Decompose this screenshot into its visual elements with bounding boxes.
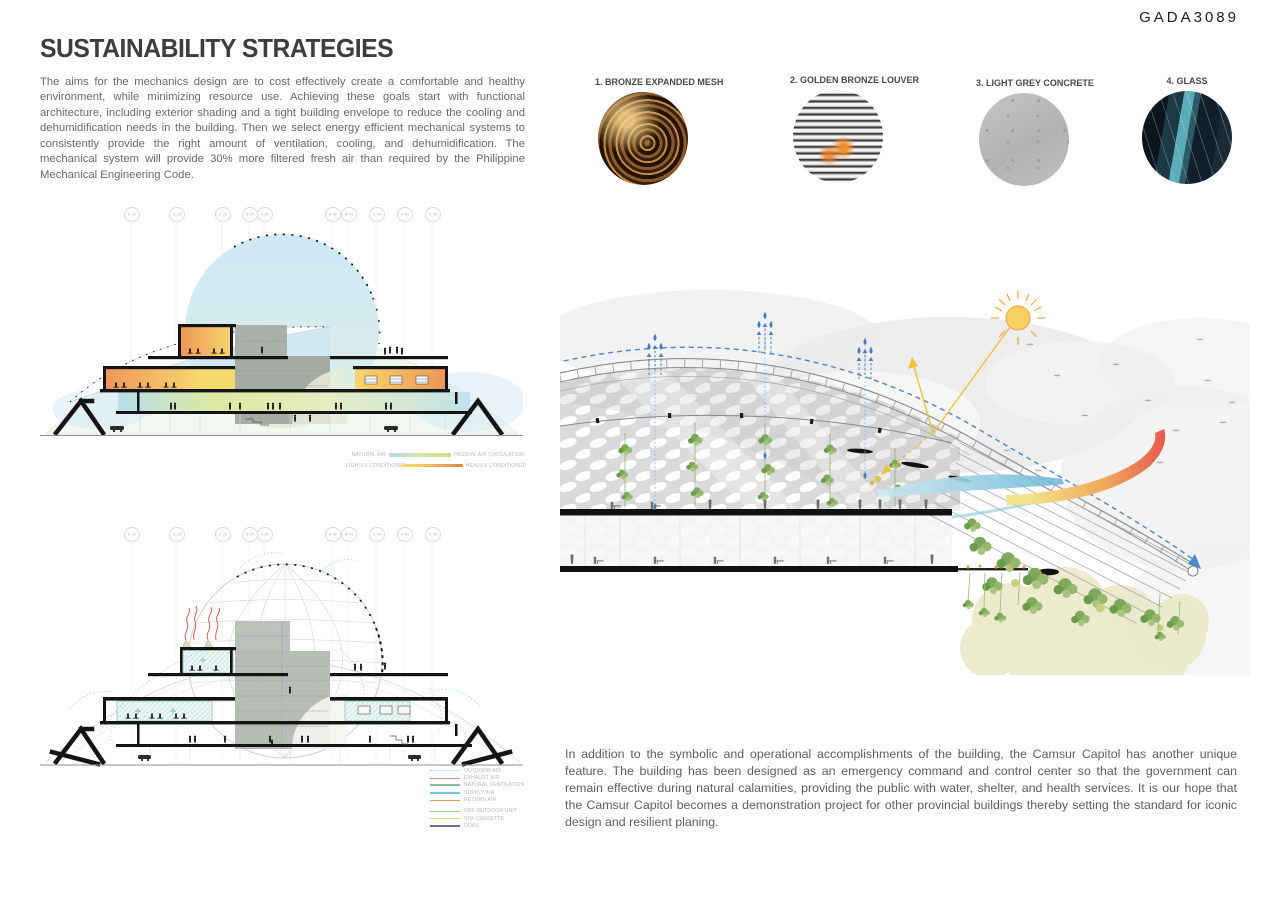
presentation-board: SUSTAINABILITY STRATEGIES GADA3089 The a… bbox=[0, 0, 1273, 900]
thermal-legend: NATURAL AIR PASSIVE AIR CIRCULATION LIGH… bbox=[346, 452, 524, 473]
exhaust-stacks bbox=[181, 606, 219, 650]
legend-line bbox=[430, 825, 460, 827]
concrete-photo bbox=[979, 93, 1069, 186]
environmental-section-perspective bbox=[560, 283, 1250, 675]
gradient-bar bbox=[389, 453, 451, 457]
gradient-bar bbox=[401, 464, 463, 468]
legend-row: SUPPLY AIR bbox=[430, 789, 540, 796]
legend-row: VRF CASSETTE bbox=[430, 815, 540, 822]
material-item: 2. GOLDEN BRONZE LOUVER bbox=[790, 75, 886, 183]
mechanical-section-diagram bbox=[40, 526, 523, 772]
bronze-mesh-photo bbox=[598, 92, 688, 185]
material-item: 3. LIGHT GREY CONCRETE bbox=[976, 78, 1072, 186]
legend-row: EXHAUST AIR bbox=[430, 774, 540, 781]
thermal-section-diagram bbox=[40, 206, 523, 440]
material-label: 3. LIGHT GREY CONCRETE bbox=[976, 78, 1072, 88]
dome-dashes bbox=[237, 564, 376, 628]
material-item: 1. BRONZE EXPANDED MESH bbox=[595, 77, 691, 185]
glass-photo bbox=[1142, 91, 1232, 184]
material-label: 4. GLASS bbox=[1139, 76, 1235, 86]
material-label: 2. GOLDEN BRONZE LOUVER bbox=[790, 75, 886, 85]
legend-row: DOAS bbox=[430, 822, 540, 829]
upper-room bbox=[181, 327, 232, 356]
legend-row: NATURAL AIR PASSIVE AIR CIRCULATION bbox=[346, 452, 524, 458]
project-code: GADA3089 bbox=[1139, 9, 1239, 26]
legend-row: LIGHTLY CONDITIONED HEAVILY CONDITIONED bbox=[346, 463, 524, 469]
mechanical-legend: OUTDOOR AIR EXHAUST AIR NATURAL VENTILAT… bbox=[430, 767, 540, 830]
material-item: 4. GLASS bbox=[1139, 76, 1235, 184]
legend-line bbox=[430, 770, 460, 771]
legend-line bbox=[430, 800, 460, 801]
legend-row: NATURAL VENTILATION bbox=[430, 782, 540, 789]
legend-line bbox=[430, 811, 460, 812]
legend-line bbox=[430, 784, 460, 786]
legend-line bbox=[430, 778, 460, 779]
legend-row: OUTDOOR AIR bbox=[430, 767, 540, 774]
outro-paragraph: In addition to the symbolic and operatio… bbox=[565, 746, 1237, 831]
legend-line bbox=[430, 818, 460, 819]
legend-line bbox=[430, 792, 460, 794]
page-title: SUSTAINABILITY STRATEGIES bbox=[40, 33, 393, 64]
legend-row: RETURN AIR bbox=[430, 797, 540, 804]
material-label: 1. BRONZE EXPANDED MESH bbox=[595, 77, 691, 87]
legend-row: VRF OUTDOOR UNIT bbox=[430, 807, 540, 814]
bronze-louver-photo bbox=[793, 90, 883, 183]
intro-paragraph: The aims for the mechanics design are to… bbox=[40, 75, 525, 183]
interior-lower-level bbox=[560, 516, 952, 566]
